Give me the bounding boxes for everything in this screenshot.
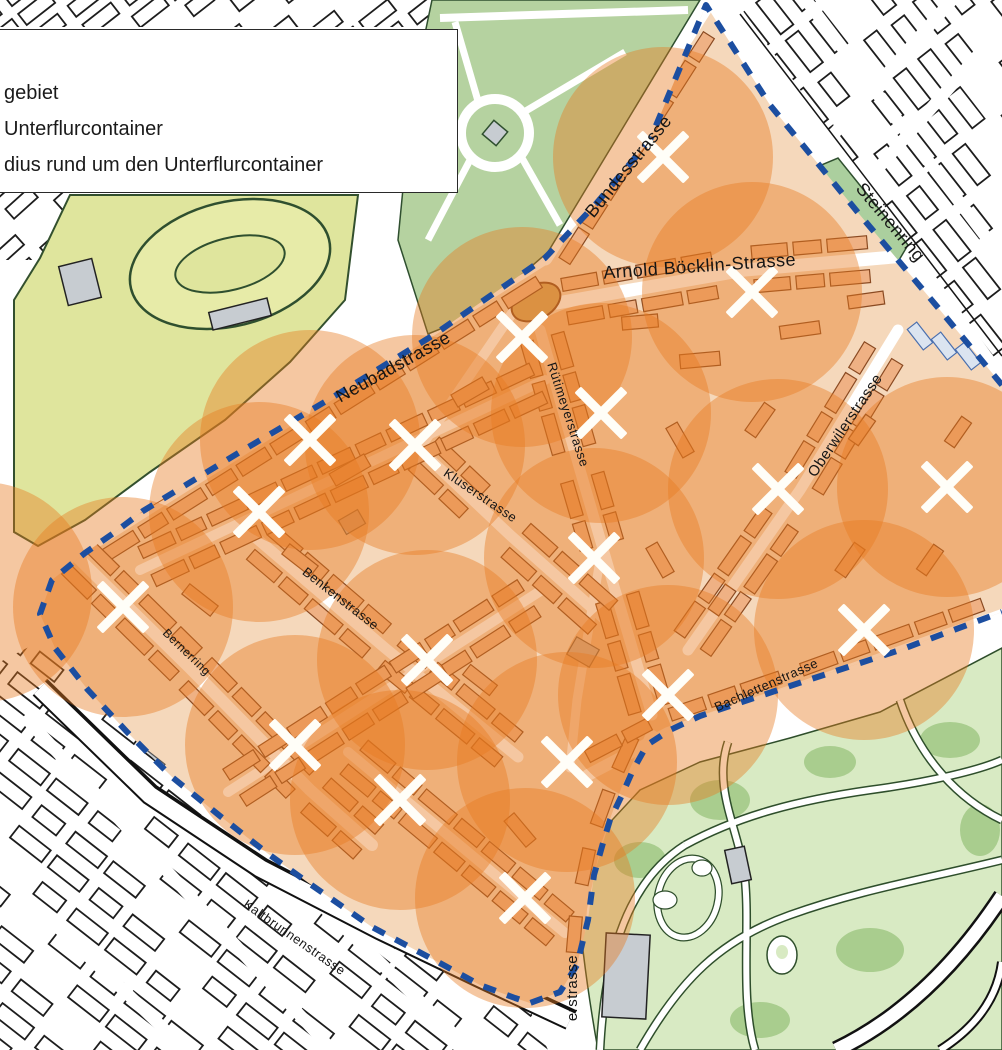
- map-screenshot: BundesstrasseSteinenringArnold Böcklin-S…: [0, 0, 1002, 1050]
- map-legend: gebiet Unterflurcontainer dius rund um d…: [0, 29, 458, 193]
- legend-item-radius: dius rund um den Unterflurcontainer: [4, 154, 323, 177]
- legend-item-pilot-area: gebiet: [4, 82, 59, 105]
- street-label: erstrasse: [564, 955, 581, 1021]
- legend-item-container-location: Unterflurcontainer: [4, 118, 163, 141]
